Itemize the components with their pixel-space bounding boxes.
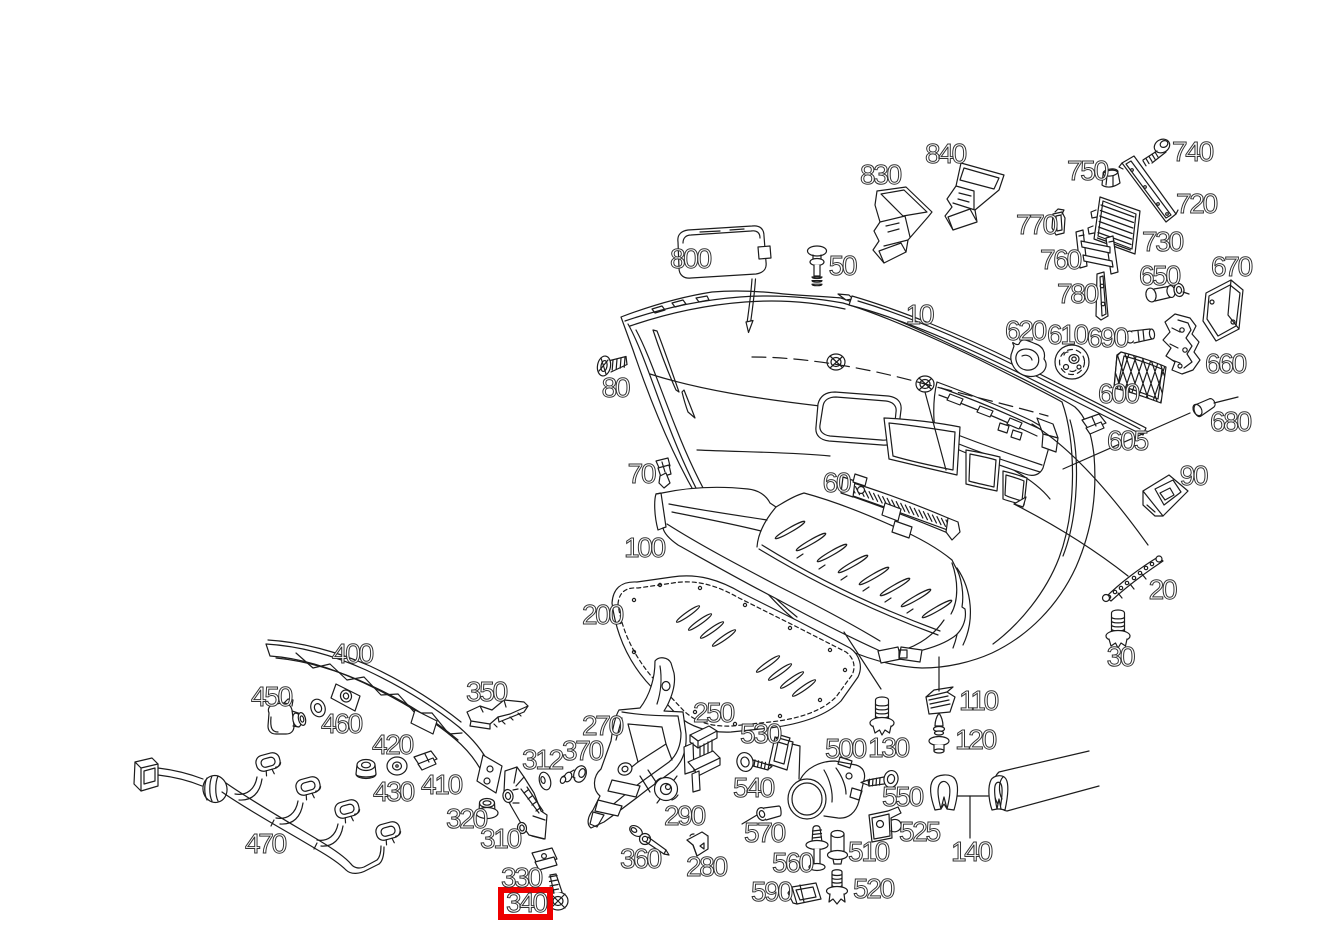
svg-text:740: 740 [1172, 136, 1214, 167]
svg-text:280: 280 [686, 851, 728, 882]
svg-text:460: 460 [321, 708, 363, 739]
svg-text:800: 800 [670, 243, 712, 274]
svg-text:100: 100 [624, 532, 666, 563]
svg-text:610: 610 [1047, 319, 1089, 350]
svg-text:60: 60 [823, 467, 851, 498]
svg-text:340: 340 [506, 887, 548, 918]
svg-text:750: 750 [1067, 155, 1109, 186]
svg-text:70: 70 [628, 458, 656, 489]
svg-text:290: 290 [664, 800, 706, 831]
svg-text:110: 110 [959, 685, 999, 716]
svg-text:500: 500 [825, 733, 867, 764]
svg-text:360: 360 [620, 843, 662, 874]
svg-text:130: 130 [868, 732, 910, 763]
svg-text:20: 20 [1149, 574, 1177, 605]
svg-text:450: 450 [251, 681, 293, 712]
svg-text:420: 420 [372, 729, 414, 760]
svg-text:430: 430 [373, 776, 415, 807]
svg-text:550: 550 [882, 781, 924, 812]
svg-text:670: 670 [1211, 251, 1253, 282]
svg-text:520: 520 [853, 873, 895, 904]
svg-text:620: 620 [1005, 315, 1047, 346]
svg-text:120: 120 [955, 724, 997, 755]
svg-text:470: 470 [245, 828, 287, 859]
svg-text:690: 690 [1087, 322, 1129, 353]
svg-text:760: 760 [1040, 244, 1082, 275]
svg-text:780: 780 [1057, 278, 1099, 309]
svg-text:830: 830 [860, 159, 902, 190]
svg-text:560: 560 [772, 847, 814, 878]
svg-text:510: 510 [848, 836, 890, 867]
svg-text:200: 200 [582, 599, 624, 630]
svg-text:770: 770 [1016, 209, 1058, 240]
svg-text:570: 570 [744, 817, 786, 848]
svg-text:730: 730 [1142, 226, 1184, 257]
svg-text:540: 540 [733, 772, 775, 803]
svg-text:660: 660 [1205, 348, 1247, 379]
svg-text:590: 590 [751, 876, 793, 907]
svg-text:80: 80 [602, 372, 630, 403]
svg-text:400: 400 [332, 638, 374, 669]
svg-text:680: 680 [1210, 406, 1252, 437]
svg-text:410: 410 [421, 769, 463, 800]
svg-text:605: 605 [1107, 425, 1149, 456]
svg-text:720: 720 [1176, 188, 1218, 219]
svg-text:250: 250 [693, 697, 735, 728]
svg-text:140: 140 [951, 836, 993, 867]
svg-text:312: 312 [522, 744, 564, 775]
svg-text:530: 530 [740, 718, 782, 749]
svg-text:350: 350 [466, 676, 508, 707]
svg-text:600: 600 [1098, 378, 1140, 409]
svg-text:650: 650 [1139, 260, 1181, 291]
svg-text:30: 30 [1107, 641, 1135, 672]
svg-text:90: 90 [1180, 460, 1208, 491]
svg-text:50: 50 [829, 250, 857, 281]
svg-text:10: 10 [906, 299, 934, 330]
svg-text:310: 310 [480, 823, 522, 854]
svg-text:525: 525 [899, 816, 941, 847]
svg-text:270: 270 [582, 710, 624, 741]
svg-text:840: 840 [925, 138, 967, 169]
